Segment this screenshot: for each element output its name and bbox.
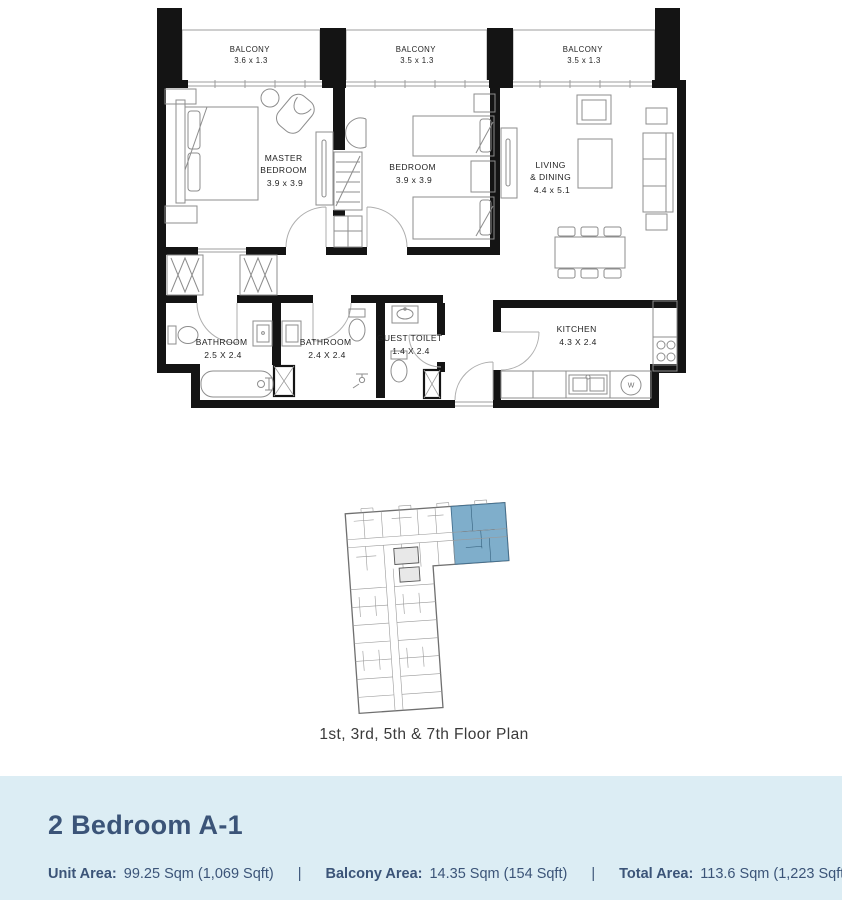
guest-toilet-label: GUEST TOILET 1.4 X 2.4: [377, 333, 445, 356]
total-area-label: Total Area:: [619, 866, 693, 882]
washer-icon: W: [628, 383, 635, 390]
living-dining-furniture: [501, 95, 673, 278]
floor-plan-canvas: W BALCONY 3.6 x 1.3 BALCONY 3.5 x 1.3 BA…: [0, 0, 842, 776]
master-bedroom-label: MASTER BEDROOM 3.9 x 3.9: [260, 153, 310, 188]
balcony-area-label: Balcony Area:: [326, 866, 423, 882]
balcony-area-value: 14.35 Sqm (154 Sqft): [429, 866, 567, 882]
unit-area-label: Unit Area:: [48, 866, 117, 882]
key-plan-highlighted-unit: [451, 503, 509, 565]
key-plan: [345, 499, 519, 714]
master-bedroom-furniture: [165, 89, 333, 223]
separator-pipe: |: [591, 866, 595, 882]
balcony3-label: BALCONY 3.5 x 1.3: [563, 45, 606, 65]
unit-info-footer: 2 Bedroom A-1 Unit Area:99.25 Sqm (1,069…: [0, 776, 842, 900]
bathroom2-label: BATHROOM 2.4 X 2.4: [300, 337, 354, 360]
window-band: [188, 80, 652, 88]
separator-pipe: |: [298, 866, 302, 882]
balcony2-label: BALCONY 3.5 x 1.3: [396, 45, 439, 65]
balcony-outlines: [182, 30, 655, 80]
unit-area-value: 99.25 Sqm (1,069 Sqft): [124, 866, 274, 882]
unit-title: 2 Bedroom A-1: [48, 810, 842, 841]
balcony1-label: BALCONY 3.6 x 1.3: [230, 45, 273, 65]
living-dining-label: LIVING & DINING 4.4 x 5.1: [530, 160, 574, 195]
kitchen-label: KITCHEN 4.3 X 2.4: [557, 324, 600, 347]
floor-plan-page: W BALCONY 3.6 x 1.3 BALCONY 3.5 x 1.3 BA…: [0, 0, 842, 900]
key-plan-caption: 1st, 3rd, 5th & 7th Floor Plan: [319, 726, 528, 743]
total-area-value: 113.6 Sqm (1,223 Sqft): [700, 866, 842, 882]
door-swings: [197, 207, 539, 406]
dressing-wardrobes: [167, 255, 277, 295]
bedroom-label: BEDROOM 3.9 x 3.9: [389, 162, 439, 185]
service-ducts: [274, 366, 440, 398]
room-labels: BALCONY 3.6 x 1.3 BALCONY 3.5 x 1.3 BALC…: [196, 45, 605, 360]
bathroom1-label: BATHROOM 2.5 X 2.4: [196, 337, 250, 360]
guest-toilet-fixtures: [391, 306, 418, 382]
area-info-row: Unit Area:99.25 Sqm (1,069 Sqft) | Balco…: [48, 866, 842, 882]
kitchen-fixtures: W: [501, 301, 677, 398]
